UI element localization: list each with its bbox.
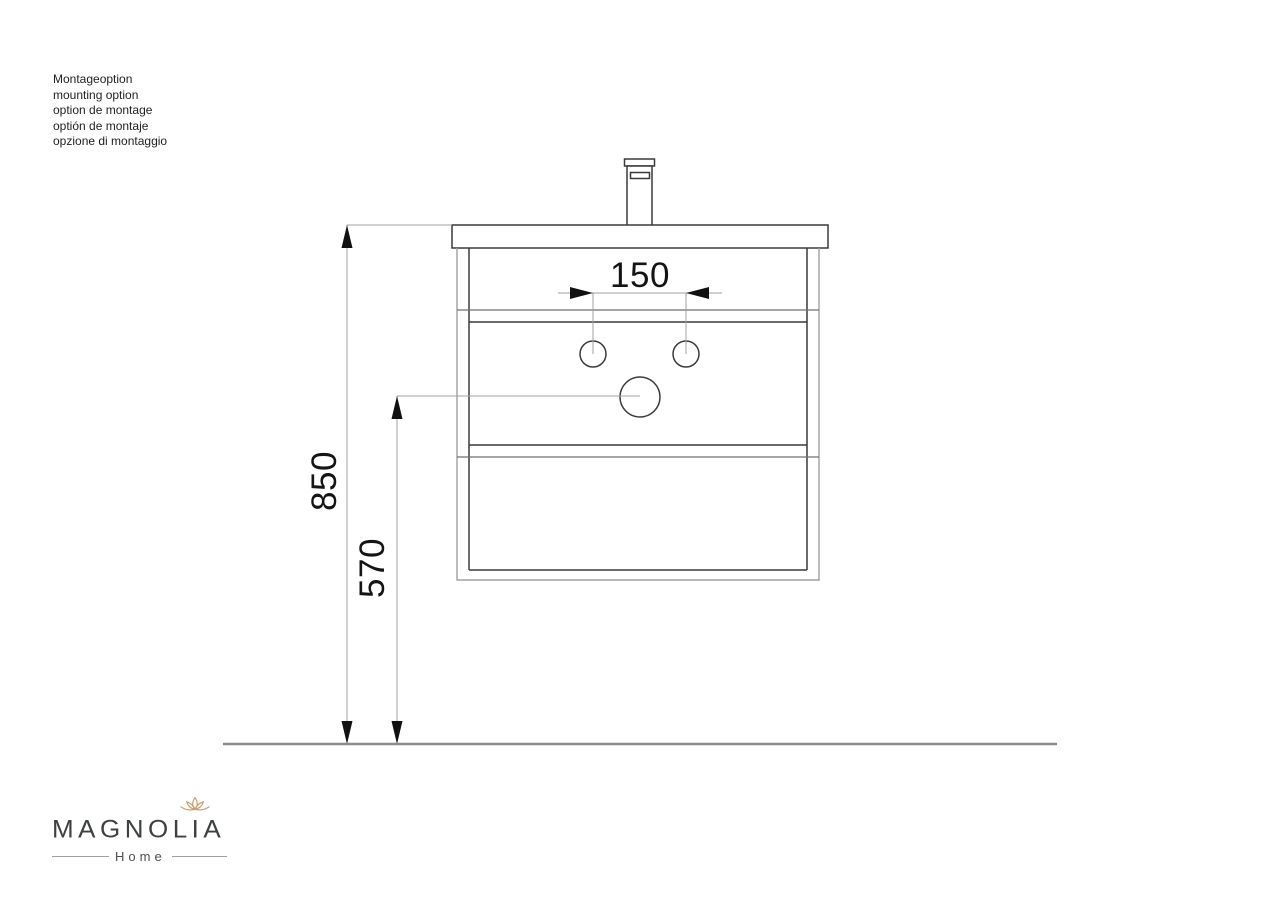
- page-canvas: Montageoption mounting option option de …: [0, 0, 1280, 905]
- logo-rule-left: [52, 856, 109, 857]
- dim-150-label: 150: [610, 256, 670, 295]
- washbasin-top: [452, 225, 828, 248]
- dim-850-arrow-top: [342, 225, 353, 248]
- logo-subtitle: Home: [115, 849, 166, 864]
- faucet-aerator-slot: [631, 173, 650, 179]
- logo-subtitle-row: Home: [52, 849, 227, 864]
- dimension-hole-spacing: 150: [558, 256, 722, 354]
- logo-brand: MAGNOLIA: [52, 797, 228, 845]
- dim-850-label: 850: [305, 451, 344, 511]
- dim-150-arrow-right: [686, 287, 709, 299]
- dim-570-arrow-top: [392, 396, 403, 419]
- dim-850-arrow-bottom: [342, 721, 353, 744]
- dimension-total-height: 850: [305, 225, 452, 744]
- holes: [580, 341, 699, 417]
- dim-570-label: 570: [353, 538, 392, 598]
- faucet-cap: [625, 159, 655, 166]
- vanity-technical-drawing: 150 850 570: [0, 0, 1280, 905]
- dim-570-arrow-bottom: [392, 721, 403, 744]
- brand-logo: MAGNOLIA Home: [52, 796, 228, 864]
- drain-hole: [620, 377, 660, 417]
- logo-rule-right: [172, 856, 227, 857]
- faucet: [625, 159, 655, 226]
- dim-150-arrow-left: [570, 287, 593, 299]
